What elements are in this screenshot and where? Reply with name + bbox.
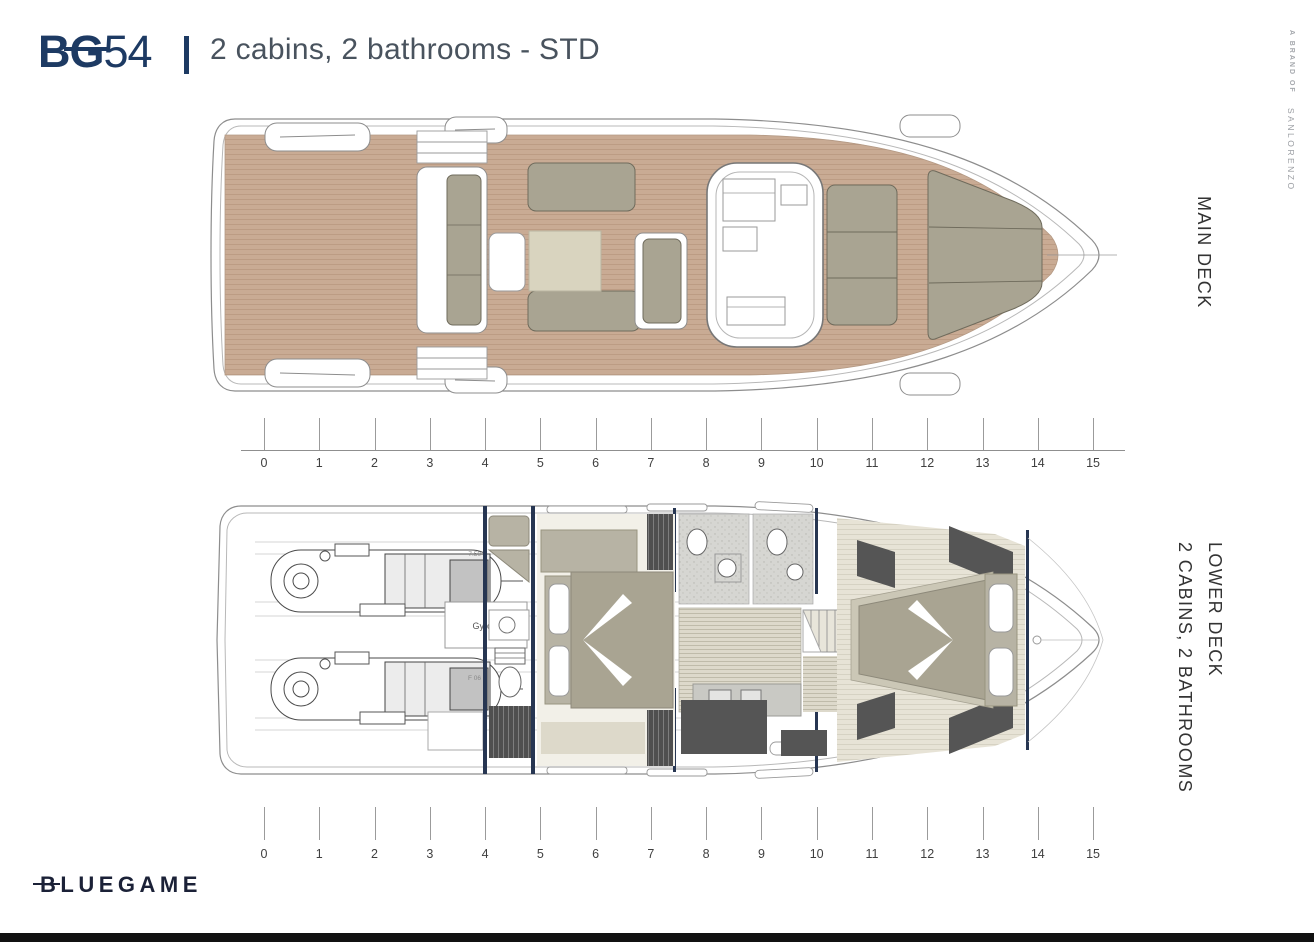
ruler-baseline [241,450,1125,451]
ruler-tick [540,418,541,450]
ruler-tick [485,418,486,450]
ruler-number: 2 [371,456,378,470]
day-head [489,516,531,758]
ruler-tick [927,418,928,450]
ruler-tick [1093,807,1094,840]
ruler-tick [596,807,597,840]
ruler-number: 12 [920,456,934,470]
ruler-tick [319,418,320,450]
master-bed [545,572,673,708]
ruler-number: 11 [865,456,878,470]
ruler-tick [1038,807,1039,840]
ruler-number: 5 [537,456,544,470]
ruler-number: 14 [1031,456,1045,470]
ruler-tick [761,807,762,840]
ruler-number: 5 [537,847,544,861]
brand-mark-line2: SANLORENZO [1286,108,1296,192]
ruler-number: 1 [316,847,323,861]
lower-deck-scale-ruler: 0123456789101112131415 [195,807,1140,863]
ruler-tick [430,418,431,450]
ruler-tick [872,807,873,840]
ruler-tick [983,807,984,840]
ruler-tick [1038,418,1039,450]
ruler-number: 10 [810,847,824,861]
ruler-tick [761,418,762,450]
ruler-number: 9 [758,456,765,470]
lower-deck-label-line1: LOWER DECK [1200,542,1230,572]
ruler-tick [264,418,265,450]
ruler-number: 1 [316,456,323,470]
ruler-number: 12 [920,847,934,861]
ruler-number: 10 [810,456,824,470]
dim-label-aft: F 06 [468,675,481,682]
model-logo-bold: BG [38,26,104,77]
ruler-tick [375,418,376,450]
ruler-number: 4 [482,847,489,861]
ruler-tick [706,807,707,840]
ruler-number: 13 [976,847,990,861]
ruler-tick [817,807,818,840]
lower-deck-label: LOWER DECK 2 CABINS, 2 BATHROOMS [1170,542,1230,802]
ruler-number: 8 [703,456,710,470]
main-deck-scale-ruler: 0123456789101112131415 [195,418,1140,474]
ruler-number: 3 [426,456,433,470]
bathrooms [679,514,813,604]
ruler-tick [651,418,652,450]
ruler-tick [983,418,984,450]
ruler-tick [817,418,818,450]
ruler-tick [540,807,541,840]
ruler-tick [375,807,376,840]
ruler-number: 15 [1086,847,1100,861]
ruler-number: 9 [758,847,765,861]
ruler-number: 6 [592,456,599,470]
ruler-number: 0 [261,456,268,470]
ruler-tick [706,418,707,450]
dim-label-fwd: 7.50 [468,551,481,558]
ruler-number: 8 [703,847,710,861]
vip-cabin [837,518,1103,762]
ruler-number: 15 [1086,456,1100,470]
header-divider [184,36,189,74]
ruler-tick [264,807,265,840]
ruler-tick [927,807,928,840]
ruler-tick [1093,418,1094,450]
brand-mark-line1: A BRAND OF [1288,30,1295,94]
ruler-number: 4 [482,456,489,470]
ruler-number: 7 [647,456,654,470]
ruler-tick [430,807,431,840]
helm-station [707,163,823,347]
brochure-page: BG54 2 cabins, 2 bathrooms - STD A BRAND… [0,0,1314,942]
ruler-tick [485,807,486,840]
main-deck-drawing [195,105,1140,405]
ruler-number: 2 [371,847,378,861]
model-logo-number: 54 [104,26,152,77]
coachroof-sunpad [827,185,897,325]
ruler-tick [651,807,652,840]
main-deck-label: MAIN DECK [1193,196,1214,346]
bottom-bar [0,933,1314,942]
ruler-tick [596,418,597,450]
lower-deck-drawing: Gyro 8 7.50 F 06 [195,490,1140,790]
ruler-number: 3 [426,847,433,861]
footer-brand-logo: BLUEGAME [40,872,202,898]
ruler-number: 6 [592,847,599,861]
layout-subtitle: 2 cabins, 2 bathrooms - STD [210,33,600,67]
lower-deck-label-line2: 2 CABINS, 2 BATHROOMS [1170,542,1200,572]
brand-mark: A BRAND OF SANLORENZO [1282,30,1300,200]
model-logo: BG54 [38,26,152,78]
ruler-number: 0 [261,847,268,861]
ruler-number: 13 [976,456,990,470]
ruler-number: 14 [1031,847,1045,861]
ruler-tick [319,807,320,840]
ruler-number: 7 [647,847,654,861]
ruler-tick [872,418,873,450]
ruler-number: 11 [865,847,878,861]
master-cabin [537,514,675,766]
cockpit-stern-bench [417,167,487,333]
